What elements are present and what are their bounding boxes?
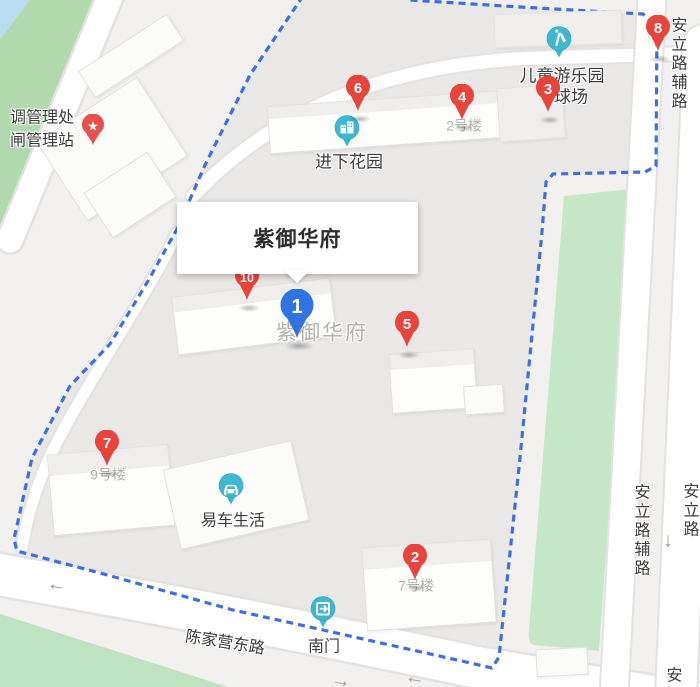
gate-icon xyxy=(308,595,338,629)
map-marker-6[interactable]: 6 xyxy=(345,75,372,117)
playground-icon xyxy=(544,25,574,59)
info-popup-title: 紫御华府 xyxy=(254,223,342,253)
poi-south-gate[interactable] xyxy=(308,595,338,634)
map-marker-5[interactable]: 5 xyxy=(394,311,421,353)
building xyxy=(535,647,588,678)
map-marker-1[interactable]: 1 xyxy=(278,289,316,344)
svg-text:3: 3 xyxy=(544,81,552,98)
info-popup-pointer xyxy=(284,270,310,283)
poi-management-station[interactable]: ★ xyxy=(80,114,106,151)
info-popup[interactable]: 紫御华府 xyxy=(177,202,418,274)
svg-text:★: ★ xyxy=(87,119,99,134)
star-pin-icon: ★ xyxy=(80,114,106,146)
map-marker-8[interactable]: 8 xyxy=(645,15,672,57)
map-marker-7[interactable]: 7 xyxy=(94,430,121,472)
svg-text:5: 5 xyxy=(403,316,411,333)
svg-text:8: 8 xyxy=(654,20,662,37)
poi-children-playground[interactable] xyxy=(544,25,574,64)
map-marker-2[interactable]: 2 xyxy=(402,544,429,586)
building-7haolou xyxy=(361,539,497,632)
map-marker-4[interactable]: 4 xyxy=(449,84,476,126)
car-icon xyxy=(216,472,246,506)
svg-text:6: 6 xyxy=(354,80,362,97)
svg-text:1: 1 xyxy=(291,296,302,318)
svg-text:2: 2 xyxy=(411,549,419,566)
building xyxy=(463,384,505,416)
poi-yiche-life[interactable] xyxy=(216,472,246,511)
svg-text:7: 7 xyxy=(103,435,111,452)
map-marker-3[interactable]: 3 xyxy=(535,76,562,118)
map-canvas[interactable]: 2号楼7号楼9号楼紫御华府陈家营东路安立路辅路安立路辅路安立路安←→←↓儿童游乐… xyxy=(0,0,700,687)
svg-text:4: 4 xyxy=(458,89,467,106)
